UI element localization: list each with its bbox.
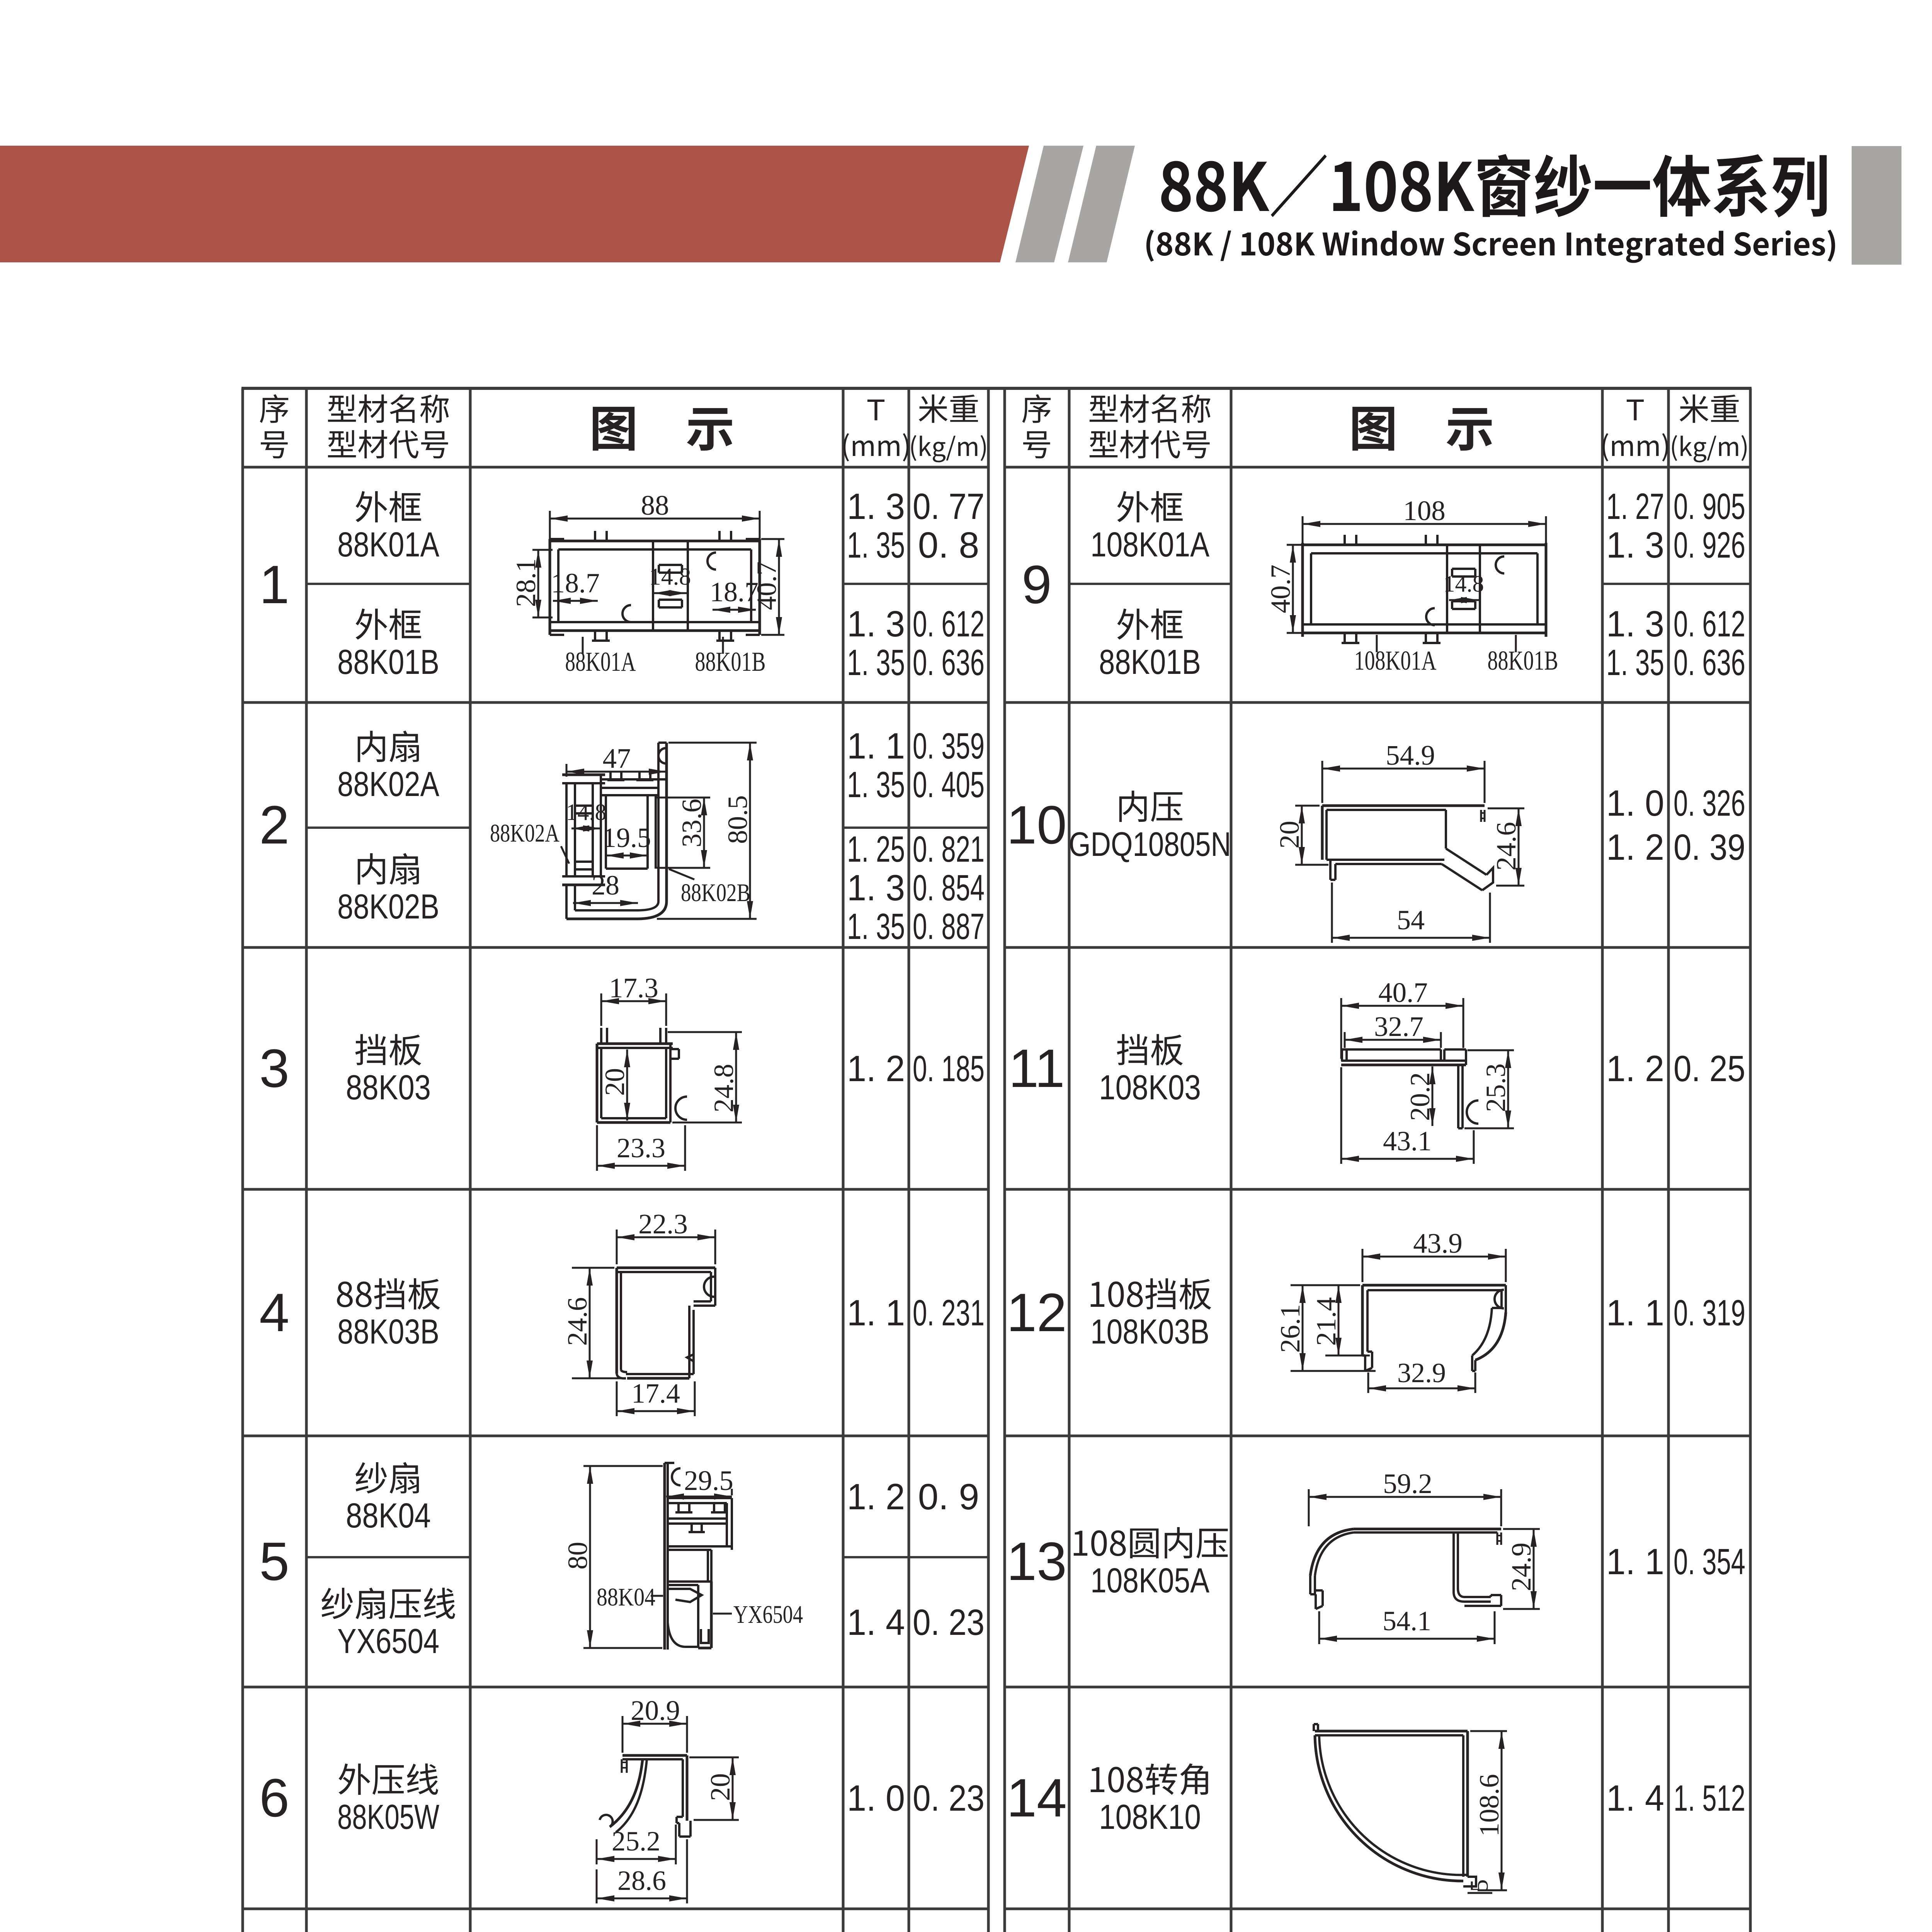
- svg-text:108K05A: 108K05A: [1090, 1561, 1209, 1600]
- svg-text:32.9: 32.9: [1397, 1357, 1446, 1388]
- svg-text:0. 39: 0. 39: [1673, 827, 1745, 868]
- svg-text:108: 108: [1403, 495, 1446, 526]
- svg-text:6: 6: [259, 1767, 289, 1828]
- svg-text:0. 185: 0. 185: [913, 1048, 985, 1089]
- svg-text:0. 612: 0. 612: [1673, 604, 1745, 645]
- svg-text:0. 319: 0. 319: [1673, 1293, 1745, 1333]
- svg-text:14.8: 14.8: [649, 564, 691, 590]
- svg-text:20.2: 20.2: [1405, 1072, 1435, 1121]
- svg-text:1. 4: 1. 4: [847, 1602, 905, 1643]
- svg-text:0. 77: 0. 77: [913, 486, 985, 527]
- svg-text:T: T: [867, 393, 885, 427]
- svg-text:108K01A: 108K01A: [1090, 526, 1209, 564]
- svg-text:1. 2: 1. 2: [1606, 827, 1664, 868]
- svg-text:25.3: 25.3: [1480, 1063, 1511, 1112]
- svg-text:80.5: 80.5: [722, 795, 753, 844]
- svg-text:88K04: 88K04: [346, 1497, 431, 1535]
- svg-text:47: 47: [603, 743, 631, 774]
- svg-text:1. 35: 1. 35: [847, 525, 905, 566]
- svg-text:24.6: 24.6: [562, 1297, 593, 1346]
- svg-text:25.2: 25.2: [612, 1826, 660, 1857]
- svg-text:88K03: 88K03: [346, 1068, 431, 1107]
- svg-text:88K05W: 88K05W: [337, 1798, 439, 1837]
- svg-text:1. 35: 1. 35: [847, 642, 905, 683]
- svg-text:54.9: 54.9: [1386, 740, 1435, 771]
- svg-text:108K10: 108K10: [1099, 1798, 1201, 1837]
- svg-text:3: 3: [259, 1038, 289, 1099]
- svg-text:1. 0: 1. 0: [847, 1778, 905, 1819]
- svg-text:20: 20: [599, 1068, 630, 1096]
- svg-text:1. 3: 1. 3: [847, 604, 905, 645]
- svg-text:0. 636: 0. 636: [1673, 642, 1745, 683]
- svg-text:18.7: 18.7: [551, 568, 600, 599]
- svg-text:20: 20: [1274, 821, 1305, 849]
- svg-text:0. 926: 0. 926: [1673, 525, 1745, 566]
- svg-text:54: 54: [1397, 905, 1425, 935]
- svg-text:17.4: 17.4: [631, 1378, 680, 1409]
- svg-text:40.7: 40.7: [1378, 977, 1428, 1008]
- svg-text:108K01A: 108K01A: [1354, 646, 1437, 676]
- svg-text:1. 25: 1. 25: [847, 829, 905, 870]
- svg-text:20: 20: [705, 1773, 736, 1801]
- svg-text:5: 5: [1465, 1879, 1493, 1892]
- svg-text:0. 23: 0. 23: [913, 1778, 985, 1819]
- svg-text:33.6: 33.6: [676, 799, 707, 847]
- svg-text:108.6: 108.6: [1474, 1774, 1505, 1837]
- svg-text:21.4: 21.4: [1311, 1297, 1342, 1346]
- svg-text:0. 9: 0. 9: [918, 1476, 979, 1517]
- svg-text:108K03B: 108K03B: [1090, 1313, 1209, 1351]
- svg-text:YX6504: YX6504: [733, 1600, 803, 1629]
- svg-text:88K02A: 88K02A: [337, 765, 439, 804]
- svg-text:26.1: 26.1: [1275, 1304, 1306, 1353]
- svg-text:0. 25: 0. 25: [1673, 1048, 1745, 1089]
- svg-text:0. 8: 0. 8: [918, 525, 979, 566]
- svg-text:40.7: 40.7: [751, 561, 782, 610]
- svg-text:0. 23: 0. 23: [913, 1602, 985, 1643]
- svg-text:11: 11: [1009, 1038, 1065, 1099]
- svg-text:0. 405: 0. 405: [913, 764, 985, 805]
- svg-text:24.9: 24.9: [1506, 1543, 1537, 1591]
- svg-text:14.8: 14.8: [566, 799, 607, 825]
- svg-text:88K01B: 88K01B: [1488, 646, 1558, 676]
- svg-text:1. 35: 1. 35: [847, 906, 905, 947]
- svg-text:54.1: 54.1: [1383, 1605, 1431, 1636]
- svg-text:22.3: 22.3: [638, 1208, 688, 1240]
- svg-text:88K01B: 88K01B: [695, 647, 766, 677]
- svg-text:14: 14: [1007, 1767, 1067, 1828]
- svg-text:1: 1: [259, 554, 289, 615]
- svg-text:88K01B: 88K01B: [1099, 643, 1201, 682]
- svg-text:1. 3: 1. 3: [847, 867, 905, 908]
- svg-text:0. 612: 0. 612: [913, 604, 985, 645]
- svg-text:1. 2: 1. 2: [847, 1048, 905, 1089]
- svg-text:88K04: 88K04: [597, 1583, 655, 1611]
- svg-text:1. 2: 1. 2: [847, 1476, 905, 1517]
- svg-text:88: 88: [641, 490, 669, 521]
- svg-text:24.8: 24.8: [708, 1064, 739, 1112]
- svg-text:1. 0: 1. 0: [1606, 783, 1664, 824]
- svg-text:5: 5: [259, 1531, 289, 1592]
- svg-text:0. 905: 0. 905: [1673, 486, 1745, 527]
- svg-text:29.5: 29.5: [684, 1465, 733, 1496]
- svg-text:YX6504: YX6504: [337, 1622, 439, 1661]
- svg-text:1. 4: 1. 4: [1606, 1778, 1664, 1819]
- svg-text:24.6: 24.6: [1491, 822, 1522, 871]
- svg-text:88K01B: 88K01B: [337, 643, 439, 682]
- svg-text:4: 4: [259, 1282, 289, 1343]
- svg-text:88K02A: 88K02A: [490, 819, 560, 847]
- svg-text:28.1: 28.1: [510, 558, 541, 607]
- svg-text:80: 80: [562, 1542, 593, 1570]
- svg-text:T: T: [1626, 393, 1645, 427]
- svg-text:1. 35: 1. 35: [847, 764, 905, 805]
- svg-text:19.5: 19.5: [602, 822, 651, 853]
- svg-text:0. 326: 0. 326: [1673, 783, 1745, 824]
- svg-text:0. 354: 0. 354: [1673, 1541, 1745, 1582]
- svg-text:12: 12: [1007, 1282, 1067, 1343]
- svg-text:0. 636: 0. 636: [913, 642, 985, 683]
- svg-text:10: 10: [1007, 794, 1067, 855]
- svg-text:13: 13: [1007, 1531, 1067, 1592]
- svg-text:1. 2: 1. 2: [1606, 1048, 1664, 1089]
- svg-text:2: 2: [259, 794, 289, 855]
- svg-text:40.7: 40.7: [1265, 565, 1296, 613]
- svg-text:9: 9: [1022, 554, 1052, 615]
- svg-text:1. 3: 1. 3: [1606, 525, 1664, 566]
- svg-text:GDQ10805N: GDQ10805N: [1069, 825, 1231, 863]
- svg-text:1. 1: 1. 1: [1606, 1541, 1664, 1582]
- svg-text:43.9: 43.9: [1413, 1228, 1463, 1259]
- svg-text:0. 821: 0. 821: [913, 829, 985, 870]
- svg-text:1. 1: 1. 1: [847, 726, 905, 767]
- svg-text:14.8: 14.8: [1444, 571, 1484, 597]
- svg-text:88K02B: 88K02B: [681, 879, 750, 907]
- svg-text:1. 35: 1. 35: [1606, 642, 1664, 683]
- svg-text:0. 854: 0. 854: [913, 867, 985, 908]
- svg-text:108K03: 108K03: [1099, 1068, 1201, 1107]
- svg-text:1. 1: 1. 1: [847, 1293, 905, 1333]
- svg-text:1. 3: 1. 3: [1606, 604, 1664, 645]
- svg-text:88K03B: 88K03B: [337, 1313, 439, 1351]
- svg-text:28: 28: [592, 870, 619, 901]
- svg-text:1. 3: 1. 3: [847, 486, 905, 527]
- svg-text:0. 359: 0. 359: [913, 726, 985, 767]
- svg-text:0. 887: 0. 887: [913, 906, 985, 947]
- svg-text:59.2: 59.2: [1383, 1468, 1432, 1499]
- svg-text:88K01A: 88K01A: [565, 647, 636, 677]
- svg-text:20.9: 20.9: [631, 1695, 680, 1726]
- svg-text:88K01A: 88K01A: [337, 526, 439, 564]
- svg-text:1. 512: 1. 512: [1673, 1778, 1745, 1819]
- svg-text:32.7: 32.7: [1374, 1011, 1423, 1042]
- svg-text:17.3: 17.3: [609, 972, 658, 1003]
- svg-text:28.6: 28.6: [617, 1865, 666, 1896]
- svg-text:23.3: 23.3: [617, 1133, 665, 1163]
- svg-text:43.1: 43.1: [1383, 1126, 1432, 1156]
- svg-text:0. 231: 0. 231: [913, 1293, 985, 1333]
- svg-text:1. 27: 1. 27: [1606, 486, 1664, 527]
- svg-text:88K02B: 88K02B: [337, 888, 439, 926]
- svg-text:1. 1: 1. 1: [1606, 1293, 1664, 1333]
